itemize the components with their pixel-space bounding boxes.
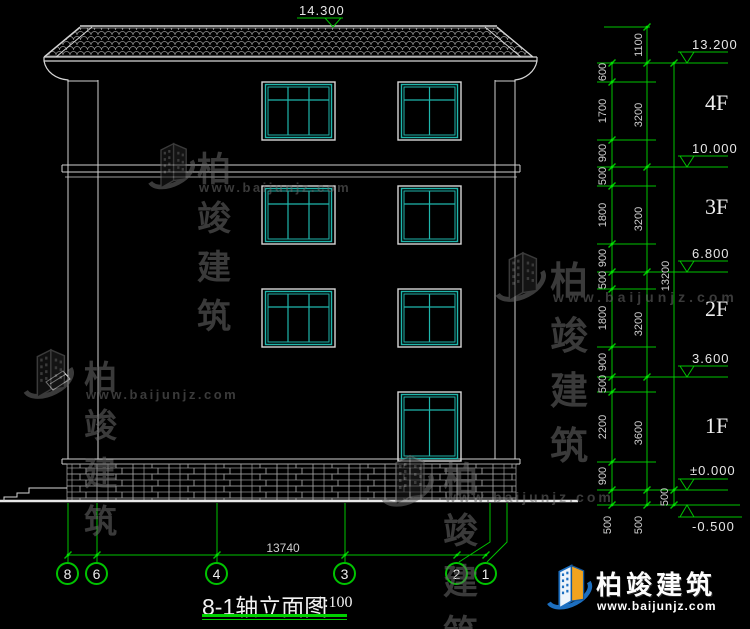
axis-number: 6	[93, 566, 101, 582]
watermark-url-text: www.baijunjz.com	[445, 489, 614, 505]
window-4f-right	[398, 82, 461, 140]
window-2f-left	[262, 289, 335, 347]
watermark-logo-icon	[490, 247, 548, 311]
axis-bubble-4: 4	[205, 562, 228, 585]
elevation-6800: 6.800	[692, 246, 730, 261]
axis-bubble-8: 8	[56, 562, 79, 585]
dim-story-3200b: 3200	[633, 207, 645, 231]
axis-number: 3	[341, 566, 349, 582]
watermark-url-text: www.baijunjz.com	[553, 289, 738, 305]
watermark-brand-text: 柏竣建筑	[84, 351, 123, 543]
dim-inner-500a: 500	[597, 167, 609, 185]
dim-inner-1800a: 1800	[597, 203, 609, 227]
dim-inner-1700: 1700	[597, 99, 609, 123]
elevation-10000: 10.000	[692, 141, 738, 156]
dim-inner-900b: 900	[597, 249, 609, 267]
axis-number: 8	[64, 566, 72, 582]
axis-bubble-6: 6	[85, 562, 108, 585]
entry-steps	[4, 488, 67, 501]
elevation-0000: ±0.000	[690, 463, 736, 478]
floor-label-3f: 3F	[705, 194, 728, 220]
floor-label-1f: 1F	[705, 413, 728, 439]
roof	[44, 26, 537, 82]
axis-number: 4	[213, 566, 221, 582]
title-underline-thin	[202, 619, 347, 620]
dim-inner-900a: 900	[597, 144, 609, 162]
dim-inner-2200: 2200	[597, 415, 609, 439]
dim-story-3200c: 3200	[633, 312, 645, 336]
watermark-brand-text: 柏竣建筑	[550, 250, 597, 470]
watermark-url-text: www.baijunjz.com	[86, 387, 238, 402]
dim-inner-500c: 500	[597, 375, 609, 393]
watermark-brand-text: 柏竣建筑	[443, 452, 483, 629]
axis-bubble-3: 3	[333, 562, 356, 585]
dim-inner-500d: 500	[602, 516, 614, 534]
dim-inner-500b: 500	[597, 271, 609, 289]
elevation-3600: 3.600	[692, 351, 730, 366]
windows	[262, 82, 461, 461]
ridge-elevation-label: 14.300	[299, 3, 345, 18]
footer-brand-logo-icon	[542, 557, 594, 621]
floor-label-4f: 4F	[705, 90, 728, 116]
footer-brand-url: www.baijunjz.com	[597, 599, 717, 613]
watermark-brand-text: 柏竣建筑	[197, 142, 238, 338]
dim-bottom-13740: 13740	[266, 541, 299, 555]
drawing-scale: 1:100	[316, 594, 352, 612]
footer-brand-name: 柏竣建筑	[596, 565, 716, 602]
window-3f-right	[398, 186, 461, 244]
title-underline-thick	[202, 614, 347, 617]
watermark-logo-icon	[376, 450, 436, 516]
watermark-logo-icon	[143, 139, 197, 197]
dim-total-13200: 13200	[660, 261, 672, 292]
elevation-13200: 13.200	[692, 37, 738, 52]
watermark-logo-icon	[18, 345, 76, 407]
dim-story-500: 500	[633, 516, 645, 534]
dim-total-500: 500	[659, 488, 671, 506]
window-4f-left	[262, 82, 335, 140]
watermark-url-text: www.baijunjz.com	[199, 180, 351, 195]
dim-story-3200a: 3200	[633, 103, 645, 127]
floor-band	[62, 165, 520, 177]
dim-inner-600: 600	[597, 63, 609, 81]
window-2f-right	[398, 289, 461, 347]
dim-inner-1800b: 1800	[597, 306, 609, 330]
cad-elevation-sheet: 14.300 13.200 10.000 6.800 3.600 ±0.000 …	[0, 0, 750, 629]
dim-story-3600: 3600	[633, 421, 645, 445]
dim-inner-900c: 900	[597, 353, 609, 371]
dim-story-1100: 1100	[633, 33, 645, 57]
dim-inner-900d: 900	[597, 467, 609, 485]
elevation-neg0500: -0.500	[692, 519, 735, 534]
